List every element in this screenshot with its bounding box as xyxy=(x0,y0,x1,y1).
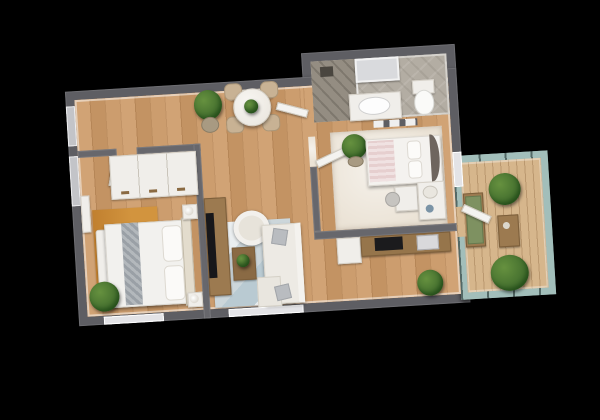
bathroom-mirror xyxy=(354,56,399,83)
balcony-side-table xyxy=(497,214,520,247)
wardrobe-handle-2 xyxy=(149,189,157,192)
kids-pillow-1 xyxy=(407,140,422,160)
kids-pillow-2 xyxy=(408,160,423,179)
rendered-floorplan-image: { "scene": { "label": "apartment-3d-floo… xyxy=(0,0,600,420)
floorplan xyxy=(62,22,561,343)
kids-bed-blanket xyxy=(367,140,395,183)
bed-pillow-1 xyxy=(161,225,183,262)
wardrobe-handle-3 xyxy=(177,188,185,191)
sofa-pillow-1 xyxy=(271,228,288,246)
wardrobe-handle-1 xyxy=(121,191,129,194)
fridge xyxy=(336,237,362,264)
bed-pillow-2 xyxy=(164,265,186,301)
cooktop xyxy=(374,236,403,251)
shower-drain xyxy=(320,66,334,77)
kitchen-sink xyxy=(416,234,439,250)
